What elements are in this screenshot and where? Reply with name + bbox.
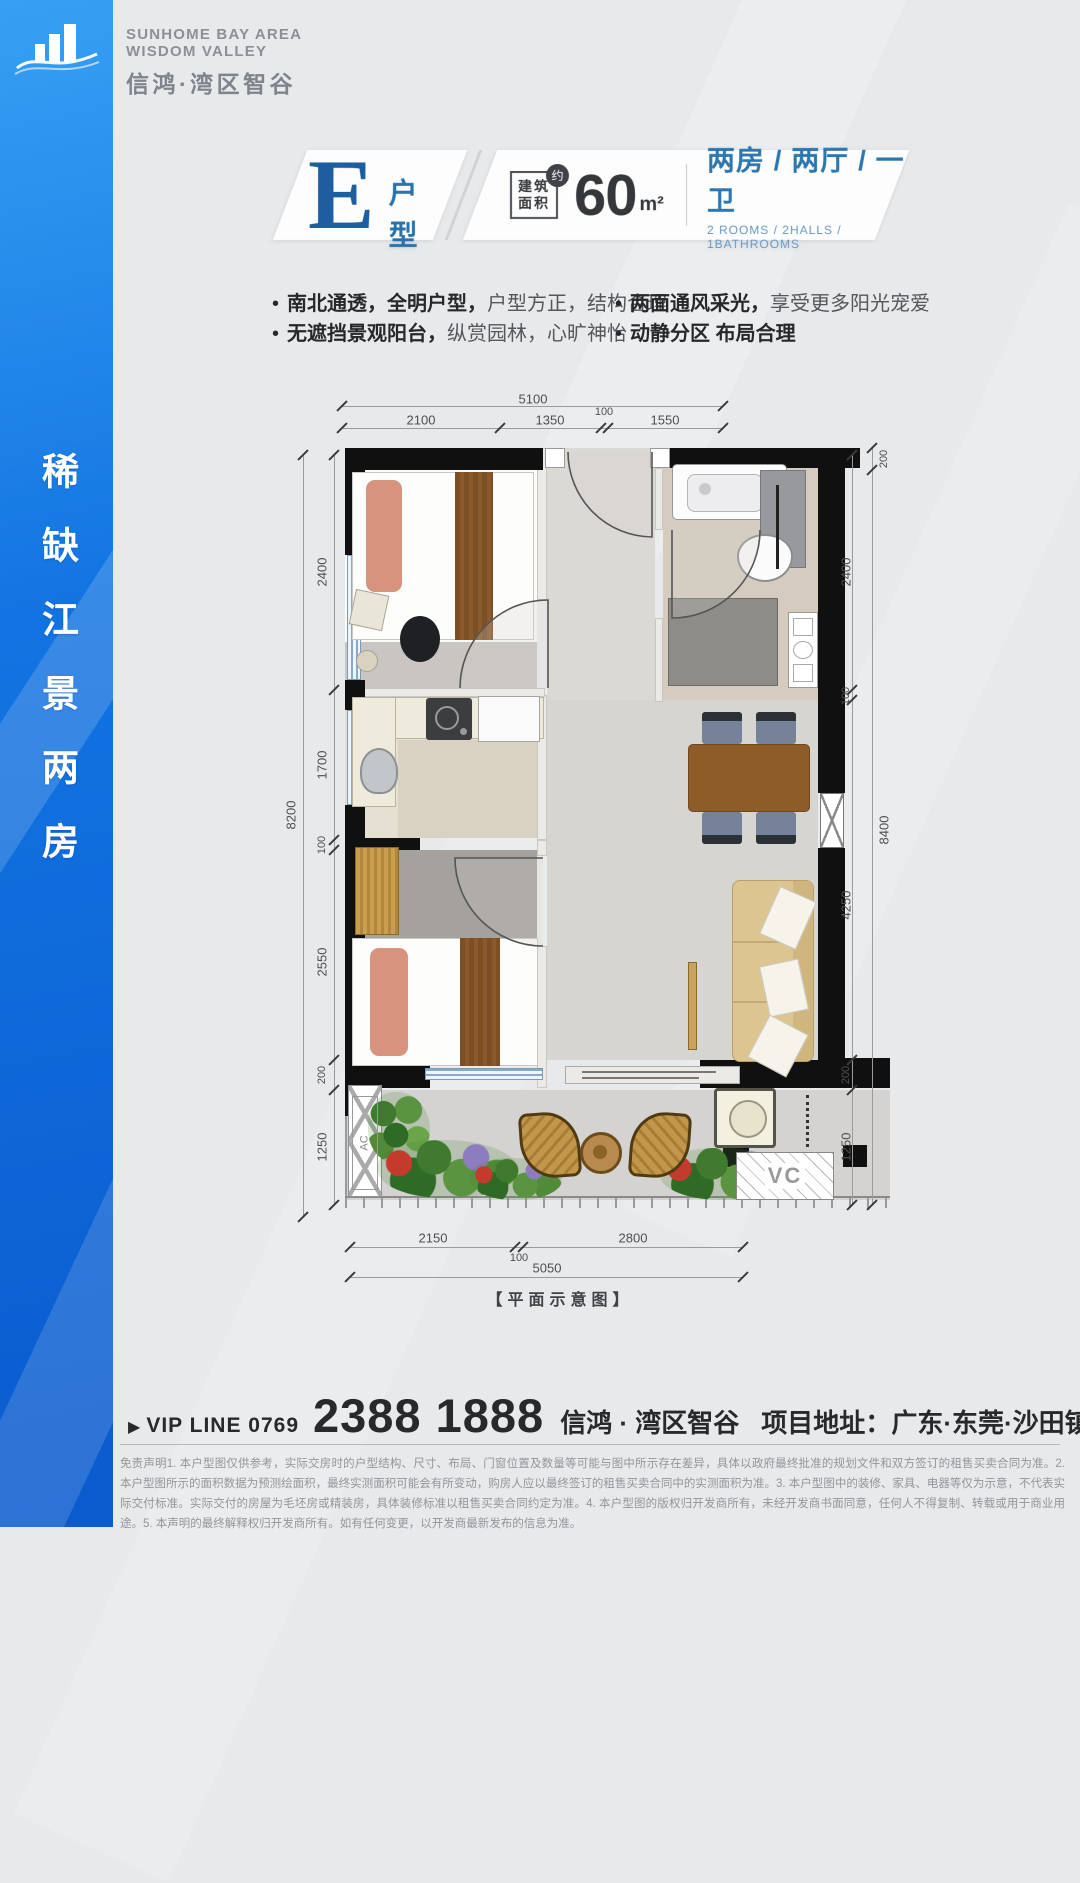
- dim-label: 8400: [877, 816, 892, 845]
- rooms-en: 2 ROOMS / 2HALLS / 1BATHROOMS: [707, 223, 908, 251]
- unit-letter: E: [308, 152, 375, 238]
- dim-label: 2800: [619, 1231, 648, 1246]
- console: [688, 962, 697, 1050]
- brand-name-en-1: SUNHOME BAY AREA: [126, 26, 302, 43]
- feature-item: •动静分区 布局合理: [615, 317, 796, 346]
- dining-table: [688, 744, 810, 812]
- play-marker-icon: ▶: [128, 1417, 140, 1437]
- dim-label: 1350: [536, 413, 565, 428]
- bed-2-mattress: [370, 948, 408, 1056]
- dim-label: 4250: [839, 891, 854, 920]
- dim-label: 1250: [315, 1133, 330, 1162]
- brand-logotype: SUNHOME BAY AREA WISDOM VALLEY 信鸿·湾区智谷: [126, 26, 302, 99]
- wall: [818, 848, 845, 1060]
- dim-label: 2550: [315, 948, 330, 977]
- feature-bold: 两面通风采光，: [630, 293, 770, 315]
- brand-name-cn: 信鸿·湾区智谷: [126, 65, 302, 99]
- ac-label: AC: [359, 1135, 371, 1150]
- stool: [356, 650, 378, 672]
- door-jamb: [650, 448, 670, 468]
- window: [425, 1068, 543, 1080]
- dim-label: 1250: [839, 1133, 854, 1162]
- dimension-line: [872, 448, 873, 1205]
- dimension-line: [350, 1247, 743, 1248]
- area-label-box: 建筑 面积 约: [510, 171, 558, 219]
- address-label: 项目地址：: [761, 1403, 891, 1440]
- feature-normal: 纵赏园林，心旷神怡: [447, 323, 627, 345]
- bed-1-runner: [455, 472, 493, 640]
- vertical-divider: [686, 164, 687, 226]
- wall: [655, 618, 663, 702]
- balcony-sliding-door: [565, 1066, 740, 1084]
- area-value: 60: [574, 162, 637, 229]
- wall: [537, 946, 547, 1088]
- wall: [537, 448, 547, 600]
- dimension-line: [303, 455, 304, 1217]
- kitchen-sink: [360, 748, 398, 794]
- stove: [426, 698, 472, 740]
- dim-label: 200: [878, 450, 890, 468]
- feature-item: •无遮挡景观阳台，纵赏园林，心旷神怡: [272, 317, 627, 346]
- contact-row: ▶ VIP LINE 0769 2388 1888 信鸿 · 湾区智谷 项目地址…: [128, 1388, 1080, 1443]
- phone-number: 2388 1888: [313, 1388, 544, 1443]
- feature-item: •南北通透，全明户型，户型方正，结构合理: [272, 287, 667, 316]
- dim-label: 100: [510, 1252, 528, 1264]
- vertical-slogan-text: 稀缺江景两房: [30, 452, 84, 896]
- plan-caption: 【平面示意图】: [455, 1286, 665, 1310]
- dim-label: 1700: [315, 751, 330, 780]
- feature-bold: 南北通透，全明户型，: [287, 293, 487, 315]
- shower-glass: [776, 485, 779, 569]
- approx-badge: 约: [546, 164, 569, 187]
- window: [820, 793, 844, 848]
- dim-label: 200: [316, 1066, 328, 1084]
- address-value: 广东·东莞·沙田镇西太隆: [891, 1403, 1080, 1440]
- feature-bold: 动静分区 布局合理: [630, 323, 796, 345]
- bed-1-mattress: [366, 480, 402, 592]
- dim-label: 100: [595, 406, 613, 418]
- disclaimer-text: 免责声明1. 本户型图仅供参考，实际交房时的户型结构、尺寸、布局、门窗位置及数量…: [120, 1454, 1065, 1535]
- dim-label: 2150: [419, 1231, 448, 1246]
- wall: [818, 702, 845, 793]
- brand-name-en-2: WISDOM VALLEY: [126, 43, 302, 60]
- dim-label: 200: [840, 1066, 852, 1084]
- area-label-line1: 建筑: [518, 178, 550, 195]
- dim-label: 2400: [315, 558, 330, 587]
- vc-unit: VC: [736, 1152, 834, 1200]
- dining-chair: [702, 812, 742, 844]
- brand-logo-icon: [13, 16, 101, 87]
- rooms-cn: 两房 / 两厅 / 一卫: [707, 139, 908, 219]
- vc-label: VC: [765, 1163, 806, 1189]
- dim-label: 5100: [519, 392, 548, 407]
- unit-info-panel: 建筑 面积 约 60 m² 两房 / 两厅 / 一卫 2 ROOMS / 2HA…: [463, 150, 910, 240]
- dimension-line: [342, 428, 723, 429]
- entry-hall-floor: [547, 448, 655, 702]
- area-unit: m²: [640, 193, 664, 216]
- dimension-line: [334, 455, 335, 1205]
- footer-divider: [120, 1444, 1060, 1445]
- wall: [345, 448, 543, 470]
- drain-line: [806, 1095, 809, 1147]
- desk-chair: [400, 616, 440, 662]
- unit-suffix: 户型: [389, 170, 450, 254]
- bed-2-runner: [460, 938, 500, 1066]
- ac-outline: AC: [352, 1096, 378, 1190]
- bullet-icon: •: [272, 323, 279, 345]
- dim-label: 100: [840, 687, 852, 705]
- dim-label: 2400: [839, 558, 854, 587]
- dim-label: 8200: [284, 801, 299, 830]
- dimension-line: [350, 1277, 743, 1278]
- wall: [537, 840, 547, 856]
- dining-chair: [756, 712, 796, 744]
- fridge: [478, 696, 540, 742]
- dining-chair: [702, 712, 742, 744]
- feature-item: •两面通风采光，享受更多阳光宠爱: [615, 287, 930, 316]
- bullet-icon: •: [615, 293, 622, 315]
- dim-label: 100: [316, 836, 328, 854]
- dining-chair: [756, 812, 796, 844]
- unit-type-panel: E 户型: [273, 150, 468, 240]
- balcony-table: [580, 1132, 622, 1174]
- bullet-icon: •: [615, 323, 622, 345]
- rooms-summary: 两房 / 两厅 / 一卫 2 ROOMS / 2HALLS / 1BATHROO…: [707, 139, 908, 251]
- dim-label: 2100: [407, 413, 436, 428]
- vip-line-label: VIP LINE 0769: [146, 1414, 299, 1438]
- shower-area: [668, 598, 778, 686]
- door-jamb: [545, 448, 565, 468]
- area-label-line2: 面积: [518, 195, 550, 212]
- dim-label: 5050: [533, 1261, 562, 1276]
- bullet-icon: •: [272, 293, 279, 315]
- dim-label: 1550: [651, 413, 680, 428]
- wardrobe: [355, 847, 399, 935]
- footer-brand: 信鸿 · 湾区智谷: [560, 1403, 739, 1440]
- feature-bold: 无遮挡景观阳台，: [287, 323, 447, 345]
- kitchen-tile: [398, 740, 537, 838]
- wall: [818, 1058, 890, 1088]
- feature-normal: 享受更多阳光宠爱: [770, 293, 930, 315]
- vertical-slogan: 稀缺江景两房: [0, 452, 113, 896]
- wall: [655, 468, 663, 530]
- washing-machine: [714, 1088, 776, 1148]
- appliance-column: [788, 612, 818, 688]
